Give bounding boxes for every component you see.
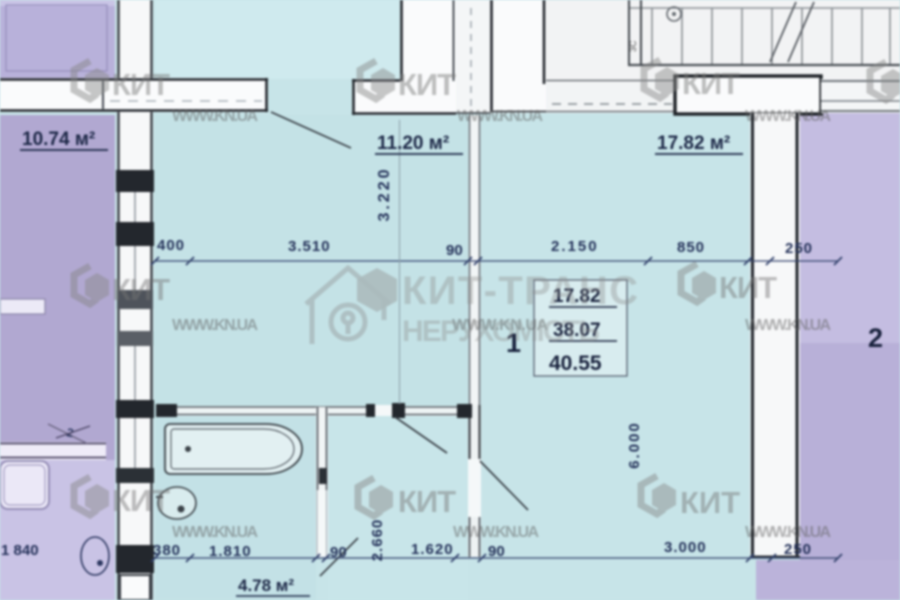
svg-text:WWW.KN.UA: WWW.KN.UA — [745, 524, 831, 541]
svg-text:17.82 м²: 17.82 м² — [657, 133, 730, 154]
svg-text:WWW.KN.UA: WWW.KN.UA — [172, 108, 258, 125]
svg-text:2.150: 2.150 — [551, 238, 599, 255]
svg-text:1 840: 1 840 — [1, 542, 39, 559]
svg-text:90: 90 — [446, 242, 463, 259]
svg-text:380: 380 — [153, 542, 181, 559]
svg-text:1.810: 1.810 — [209, 543, 252, 560]
svg-text:6.000: 6.000 — [626, 421, 643, 469]
svg-text:250: 250 — [785, 240, 813, 257]
svg-text:WWW.KN.UA: WWW.KN.UA — [457, 108, 543, 125]
svg-text:2: 2 — [868, 323, 883, 353]
svg-text:90: 90 — [488, 543, 505, 560]
svg-text:КИТ: КИТ — [112, 67, 170, 102]
svg-text:40.55: 40.55 — [549, 352, 602, 375]
svg-text:4.78 м²: 4.78 м² — [238, 576, 294, 595]
svg-text:3.000: 3.000 — [664, 539, 707, 556]
svg-text:WWW.KN.UA: WWW.KN.UA — [172, 317, 258, 334]
svg-text:КИТ: КИТ — [680, 485, 740, 520]
svg-text:КИТ: КИТ — [682, 66, 740, 101]
svg-text:850: 850 — [677, 239, 705, 256]
svg-text:1.620: 1.620 — [411, 541, 454, 558]
svg-text:КИТ: КИТ — [112, 272, 170, 307]
svg-text:WWW.KN.UA: WWW.KN.UA — [452, 317, 548, 334]
svg-text:10.74 м²: 10.74 м² — [22, 129, 95, 150]
svg-text:КИТ: КИТ — [398, 67, 456, 102]
svg-text:250: 250 — [784, 541, 812, 558]
svg-text:400: 400 — [157, 237, 185, 254]
svg-text:3C: 3C — [628, 40, 638, 52]
svg-text:WWW.KN.UA: WWW.KN.UA — [745, 108, 831, 125]
svg-text:11.20 м²: 11.20 м² — [377, 133, 449, 154]
svg-text:3.220: 3.220 — [376, 166, 393, 221]
svg-text:КИТ: КИТ — [719, 270, 777, 305]
svg-text:КИТ: КИТ — [398, 484, 456, 519]
svg-text:3.510: 3.510 — [288, 238, 331, 255]
svg-text:КИТ-ТРАНС: КИТ-ТРАНС — [402, 269, 638, 313]
svg-text:90: 90 — [330, 544, 347, 561]
svg-text:КИТ: КИТ — [112, 483, 170, 518]
svg-text:WWW.KN.UA: WWW.KN.UA — [745, 317, 831, 334]
svg-text:WWW.KN.UA: WWW.KN.UA — [453, 524, 539, 541]
svg-text:WWW.KN.UA: WWW.KN.UA — [172, 524, 258, 541]
svg-text:2.660: 2.660 — [369, 519, 386, 562]
